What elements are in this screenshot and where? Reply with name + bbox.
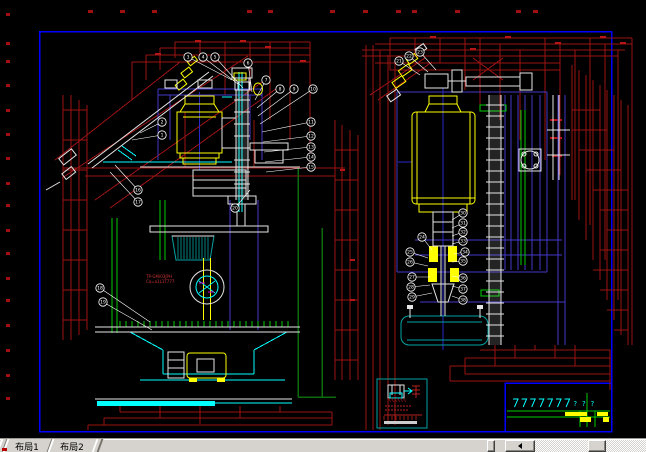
svg-text:37: 37 — [460, 287, 466, 293]
finish-check-symbol — [522, 399, 527, 407]
balloon-5: 5 — [211, 53, 243, 88]
svg-text:17: 17 — [135, 200, 141, 206]
svg-text:6: 6 — [247, 61, 250, 67]
finish-query-symbol: ? — [582, 400, 586, 408]
drawing-canvas[interactable]: TP-GM/03JPH Ca=a1L1T777 ??? 345678910111… — [0, 0, 646, 438]
yellow-parts — [168, 54, 609, 422]
svg-text:11: 11 — [308, 120, 314, 126]
svg-text:32: 32 — [460, 230, 466, 236]
balloon-26: 26 — [406, 258, 428, 266]
finish-check-symbol — [513, 399, 518, 407]
scroll-left-button[interactable] — [505, 440, 535, 452]
assembly-notes: TP-GM/03JPH Ca=a1L1T777 — [145, 274, 175, 284]
svg-text:21: 21 — [396, 59, 402, 65]
cad-window: TP-GM/03JPH Ca=a1L1T777 ??? 345678910111… — [0, 0, 646, 452]
svg-text:26: 26 — [407, 260, 413, 266]
svg-text:36: 36 — [460, 276, 466, 282]
scroll-left-icon — [515, 443, 522, 449]
balloon-6: 6 — [244, 59, 252, 92]
white-parts — [46, 44, 570, 399]
svg-text:8: 8 — [279, 87, 282, 93]
svg-text:22: 22 — [406, 54, 412, 60]
balloon-30: 30 — [452, 209, 467, 220]
svg-text:1: 1 — [161, 133, 164, 139]
balloon-27: 27 — [408, 273, 430, 281]
svg-text:27: 27 — [409, 275, 415, 281]
balloon-37: 37 — [452, 285, 467, 293]
svg-text:30: 30 — [460, 211, 466, 217]
note-line-2: Ca=a1L1T777 — [146, 279, 175, 284]
svg-text:5: 5 — [214, 55, 217, 61]
horizontal-scrollbar-thumb[interactable] — [588, 440, 606, 452]
svg-text:38: 38 — [460, 298, 466, 304]
svg-text:33: 33 — [460, 239, 466, 245]
balloon-28: 28 — [407, 283, 430, 291]
svg-text:25: 25 — [407, 250, 413, 256]
svg-text:23: 23 — [417, 50, 423, 56]
balloon-14: 14 — [265, 153, 315, 162]
layout-tab-2[interactable]: 布局2 — [47, 439, 97, 452]
balloon-38: 38 — [452, 296, 467, 304]
horizontal-scrollbar-track[interactable] — [535, 440, 646, 452]
balloon-32: 32 — [452, 228, 467, 236]
balloon-12: 12 — [263, 132, 315, 142]
svg-text:20: 20 — [232, 206, 238, 212]
balloon-13: 13 — [264, 143, 315, 152]
layout-tab-1[interactable]: 布局1 — [3, 439, 53, 452]
svg-text:29: 29 — [409, 295, 415, 301]
finish-query-symbol: ? — [591, 400, 595, 408]
finish-check-symbol — [547, 399, 552, 407]
svg-text:35: 35 — [460, 259, 466, 265]
balloon-1: 1 — [132, 131, 166, 140]
balloon-24: 24 — [418, 233, 432, 250]
tabbar-splitter[interactable] — [487, 440, 495, 452]
svg-text:18: 18 — [97, 286, 103, 292]
svg-text:19: 19 — [100, 300, 106, 306]
balloon-31: 31 — [452, 219, 467, 228]
svg-text:12: 12 — [308, 134, 314, 140]
balloon-25: 25 — [406, 248, 428, 258]
svg-text:4: 4 — [202, 55, 205, 61]
finish-check-symbol — [539, 399, 544, 407]
layout-tab-label: 布局1 — [15, 442, 39, 452]
svg-text:13: 13 — [308, 145, 314, 151]
svg-text:34: 34 — [462, 250, 468, 256]
svg-text:3: 3 — [187, 55, 190, 61]
svg-text:31: 31 — [460, 221, 466, 227]
edge-tick-marks — [6, 10, 538, 400]
balloon-19: 19 — [99, 298, 152, 330]
balloon-8: 8 — [257, 85, 284, 108]
svg-text:15: 15 — [308, 165, 314, 171]
svg-text:2: 2 — [161, 120, 164, 126]
surface-finish-symbols: ??? — [513, 399, 595, 408]
balloon-29: 29 — [408, 293, 432, 301]
balloon-33: 33 — [452, 237, 467, 245]
svg-text:24: 24 — [419, 235, 425, 241]
dimension-lines — [55, 37, 632, 430]
svg-text:9: 9 — [293, 87, 296, 93]
finish-query-symbol: ? — [573, 400, 577, 408]
balloon-callouts: 3456789101112131415211617181920212223242… — [96, 48, 469, 330]
finish-check-symbol — [556, 399, 561, 407]
layout-tabs: 布局1布局2 — [0, 439, 101, 452]
finish-check-symbol — [565, 399, 570, 407]
finish-check-symbol — [530, 399, 535, 407]
layout-tab-label: 布局2 — [60, 442, 84, 452]
svg-text:16: 16 — [135, 188, 141, 194]
svg-text:28: 28 — [408, 285, 414, 291]
svg-text:10: 10 — [310, 87, 316, 93]
svg-text:14: 14 — [308, 155, 314, 161]
svg-text:7: 7 — [265, 78, 268, 84]
detail-box — [377, 379, 427, 428]
stray-red-mark — [2, 448, 7, 451]
layout-tab-bar: 布局1布局2 — [0, 438, 646, 452]
